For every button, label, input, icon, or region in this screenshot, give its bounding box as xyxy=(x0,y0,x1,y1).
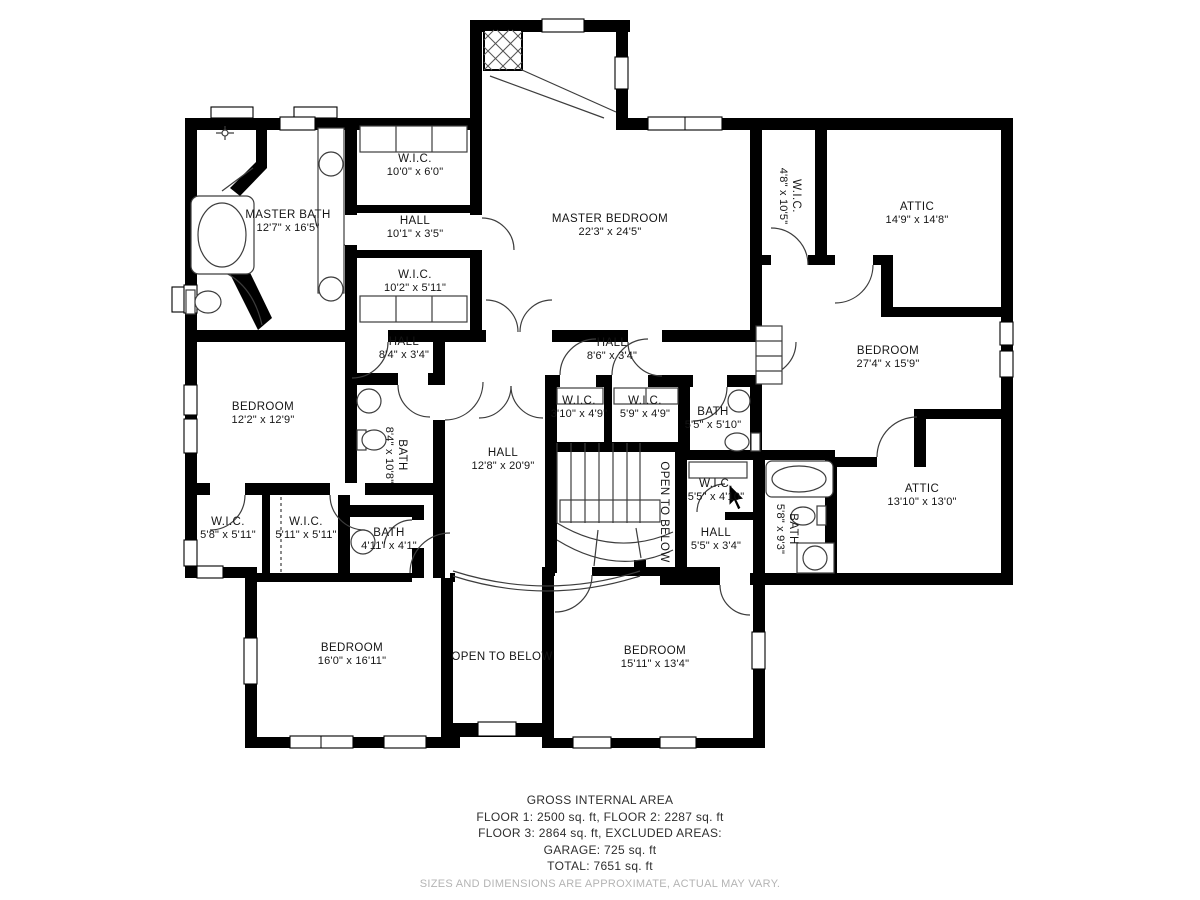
room-dims: 15'11" x 13'4" xyxy=(621,658,689,672)
area-summary: GROSS INTERNAL AREA FLOOR 1: 2500 sq. ft… xyxy=(0,792,1200,892)
room-dims: 5'5" x 4'10" xyxy=(688,491,745,505)
room-label-attic-2: ATTIC 13'10" x 13'0" xyxy=(887,482,956,510)
toilet-master xyxy=(186,290,221,314)
room-dims: 16'0" x 16'11" xyxy=(318,655,386,669)
room-label-hall-55: HALL 5'5" x 3'4" xyxy=(691,526,741,554)
room-label-hall-center: HALL 12'8" x 20'9" xyxy=(472,446,535,474)
room-name: BATH xyxy=(786,504,800,554)
room-name: BATH xyxy=(685,405,742,419)
label-open-to-below-stair: OPEN TO BELOW xyxy=(657,461,671,562)
room-name: BEDROOM xyxy=(318,641,386,655)
room-label-bath-55: BATH 5'5" x 5'10" xyxy=(685,405,742,433)
room-name: BEDROOM xyxy=(857,344,920,358)
room-dims: 8'6" x 3'4" xyxy=(587,350,637,364)
room-name: BEDROOM xyxy=(232,400,295,414)
room-name: W.I.C. xyxy=(200,515,256,529)
room-name: HALL xyxy=(587,336,637,350)
area-summary-line1: FLOOR 1: 2500 sq. ft, FLOOR 2: 2287 sq. … xyxy=(0,809,1200,826)
room-label-hall-master: HALL 10'1" x 3'5" xyxy=(387,214,444,242)
room-name: W.I.C. xyxy=(688,477,745,491)
room-label-wic-58: W.I.C. 5'8" x 5'11" xyxy=(200,515,256,543)
room-name: HALL xyxy=(379,335,429,349)
room-dims: 22'3" x 24'5" xyxy=(552,226,668,240)
label-open-to-below-foyer: OPEN TO BELOW xyxy=(451,650,552,664)
room-label-hall-86: HALL 8'6" x 3'4" xyxy=(587,336,637,364)
room-dims: 12'7" x 16'5" xyxy=(245,222,330,236)
room-name: OPEN TO BELOW xyxy=(451,650,552,664)
room-dims: 5'11" x 5'11" xyxy=(275,529,336,543)
room-dims: 3'10" x 4'9" xyxy=(551,408,608,422)
room-dims: 14'9" x 14'8" xyxy=(886,214,949,228)
room-label-wic-511: W.I.C. 5'11" x 5'11" xyxy=(275,515,336,543)
room-name: MASTER BEDROOM xyxy=(552,212,668,226)
area-summary-line4: TOTAL: 7651 sq. ft xyxy=(0,858,1200,875)
room-dims: 5'8" x 9'3" xyxy=(772,504,786,554)
room-label-wic-master-2: W.I.C. 10'2" x 5'11" xyxy=(384,268,446,296)
floor-plan-graphic xyxy=(0,0,1200,900)
room-name: BATH xyxy=(361,526,417,540)
room-dims: 5'8" x 5'11" xyxy=(200,529,256,543)
room-label-bedroom-left: BEDROOM 12'2" x 12'9" xyxy=(232,400,295,428)
floor-plan-page: MASTER BATH 12'7" x 16'5" W.I.C. 10'0" x… xyxy=(0,0,1200,900)
room-name: W.I.C. xyxy=(384,268,446,282)
room-label-bedroom-right: BEDROOM 27'4" x 15'9" xyxy=(857,344,920,372)
room-name: W.I.C. xyxy=(551,394,608,408)
room-label-wic-310: W.I.C. 3'10" x 4'9" xyxy=(551,394,608,422)
room-dims: 10'0" x 6'0" xyxy=(387,166,444,180)
room-dims: 4'11" x 4'1" xyxy=(361,540,417,554)
room-dims: 27'4" x 15'9" xyxy=(857,358,920,372)
room-label-bath-84: BATH 8'4" x 10'8" xyxy=(381,427,409,484)
area-summary-line3: GARAGE: 725 sq. ft xyxy=(0,842,1200,859)
room-dims: 13'10" x 13'0" xyxy=(887,496,956,510)
room-dims: 12'8" x 20'9" xyxy=(472,460,535,474)
room-dims: 4'8" x 10'5" xyxy=(775,168,789,225)
room-dims: 5'5" x 5'10" xyxy=(685,419,742,433)
room-label-wic-55: W.I.C. 5'5" x 4'10" xyxy=(688,477,745,505)
room-label-hall-84: HALL 8'4" x 3'4" xyxy=(379,335,429,363)
room-label-bedroom-bottom-right: BEDROOM 15'11" x 13'4" xyxy=(621,644,689,672)
room-name: W.I.C. xyxy=(620,394,670,408)
room-label-wic-attic: W.I.C. 4'8" x 10'5" xyxy=(775,168,803,225)
room-label-bath-411: BATH 4'11" x 4'1" xyxy=(361,526,417,554)
room-dims: 5'5" x 3'4" xyxy=(691,540,741,554)
room-dims: 8'4" x 10'8" xyxy=(381,427,395,484)
room-dims: 10'1" x 3'5" xyxy=(387,228,444,242)
room-name: HALL xyxy=(691,526,741,540)
chimney-hatch xyxy=(484,30,616,118)
room-name: ATTIC xyxy=(887,482,956,496)
room-dims: 5'9" x 4'9" xyxy=(620,408,670,422)
room-label-wic-master-1: W.I.C. 10'0" x 6'0" xyxy=(387,152,444,180)
room-label-attic-1: ATTIC 14'9" x 14'8" xyxy=(886,200,949,228)
room-name: OPEN TO BELOW xyxy=(657,461,671,562)
room-dims: 10'2" x 5'11" xyxy=(384,282,446,296)
room-name: W.I.C. xyxy=(789,168,803,225)
room-name: ATTIC xyxy=(886,200,949,214)
room-label-wic-59: W.I.C. 5'9" x 4'9" xyxy=(620,394,670,422)
room-name: W.I.C. xyxy=(275,515,336,529)
room-label-bath-58: BATH 5'8" x 9'3" xyxy=(772,504,800,554)
area-summary-line2: FLOOR 3: 2864 sq. ft, EXCLUDED AREAS: xyxy=(0,825,1200,842)
room-name: BATH xyxy=(395,427,409,484)
area-summary-disclaimer: SIZES AND DIMENSIONS ARE APPROXIMATE, AC… xyxy=(0,876,1200,893)
room-name: W.I.C. xyxy=(387,152,444,166)
room-name: HALL xyxy=(387,214,444,228)
room-dims: 12'2" x 12'9" xyxy=(232,414,295,428)
room-dims: 8'4" x 3'4" xyxy=(379,349,429,363)
room-name: HALL xyxy=(472,446,535,460)
area-summary-title: GROSS INTERNAL AREA xyxy=(0,792,1200,809)
room-name: BEDROOM xyxy=(621,644,689,658)
room-label-master-bath: MASTER BATH 12'7" x 16'5" xyxy=(245,208,330,236)
room-label-bedroom-bottom-left: BEDROOM 16'0" x 16'11" xyxy=(318,641,386,669)
room-label-master-bedroom: MASTER BEDROOM 22'3" x 24'5" xyxy=(552,212,668,240)
room-name: MASTER BATH xyxy=(245,208,330,222)
